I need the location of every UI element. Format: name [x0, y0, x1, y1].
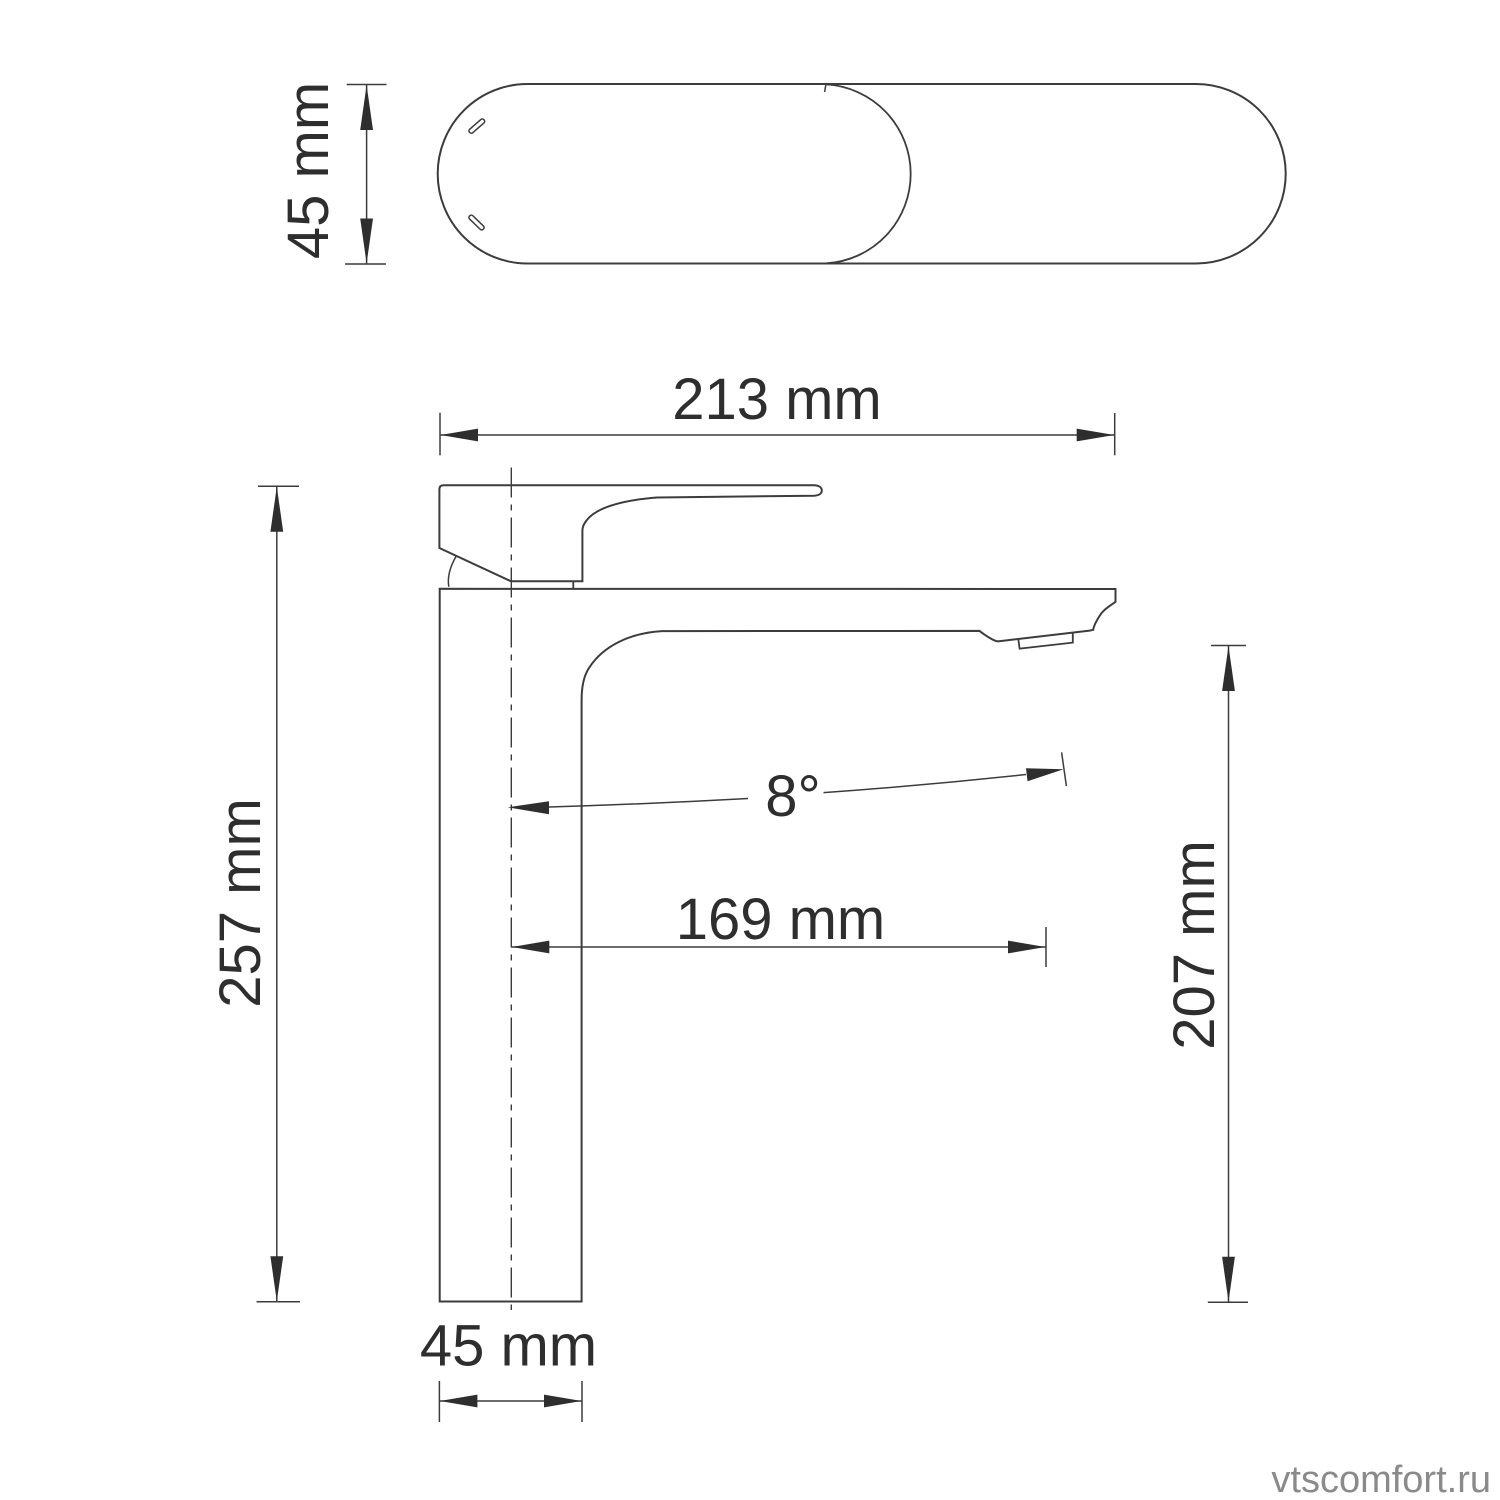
svg-text:257 mm: 257 mm — [208, 798, 273, 1008]
svg-text:169 mm: 169 mm — [676, 887, 886, 952]
svg-text:207 mm: 207 mm — [1162, 840, 1227, 1050]
svg-text:vtscomfort.ru: vtscomfort.ru — [1271, 1459, 1491, 1500]
svg-text:45 mm: 45 mm — [276, 82, 341, 259]
svg-text:45 mm: 45 mm — [420, 1313, 597, 1378]
svg-text:213 mm: 213 mm — [672, 367, 882, 432]
svg-text:8°: 8° — [765, 764, 820, 829]
